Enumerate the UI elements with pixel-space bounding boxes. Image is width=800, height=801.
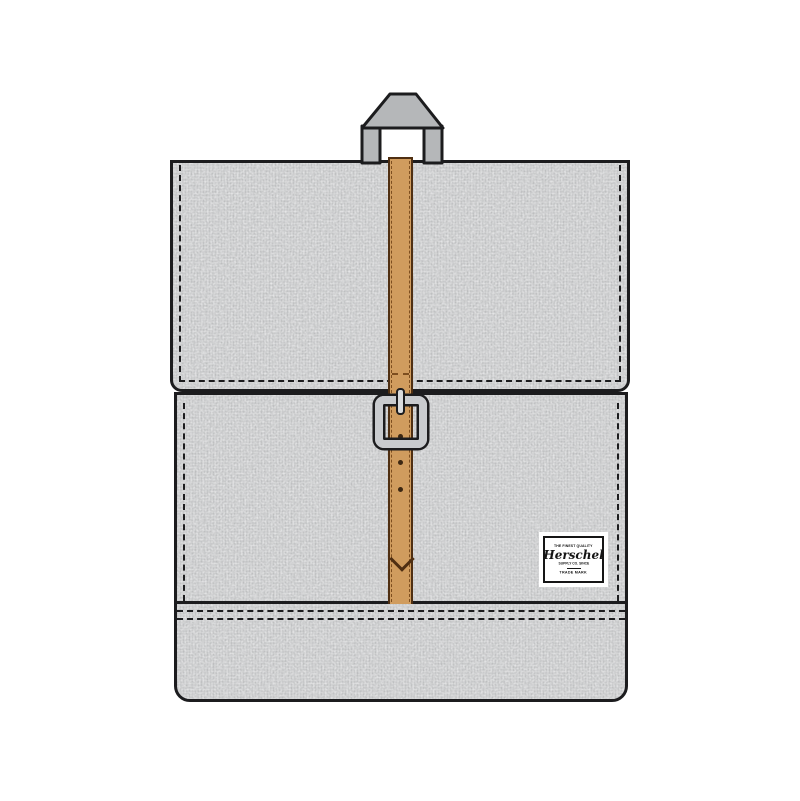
handle-top (362, 94, 443, 128)
brand-label-patch: THE FINEST QUALITY Herschel SUPPLY CO. S… (543, 536, 604, 583)
label-top-text: THE FINEST QUALITY (554, 545, 593, 548)
label-ornament (567, 568, 581, 569)
bottom-seam-stitching (177, 610, 625, 612)
strap-fold-stitching (392, 373, 409, 375)
brand-name: Herschel (543, 549, 603, 561)
label-sub-text: SUPPLY CO. SINCE (558, 562, 589, 565)
buckle-prong (396, 388, 405, 415)
handle-left-leg (362, 126, 380, 163)
closure-strap (388, 157, 413, 604)
label-trademark-text: TRADE MARK (560, 571, 587, 575)
body-left-stitching (183, 403, 185, 601)
body-right-stitching (617, 403, 619, 601)
bottom-seam-stitching (177, 618, 625, 620)
handle-right-leg (424, 126, 442, 163)
strap-edge-stitching (391, 161, 410, 602)
strap-hole (398, 487, 403, 492)
top-handle (352, 88, 452, 168)
backpack-illustration: THE FINEST QUALITY Herschel SUPPLY CO. S… (0, 0, 800, 801)
strap-hole (398, 460, 403, 465)
